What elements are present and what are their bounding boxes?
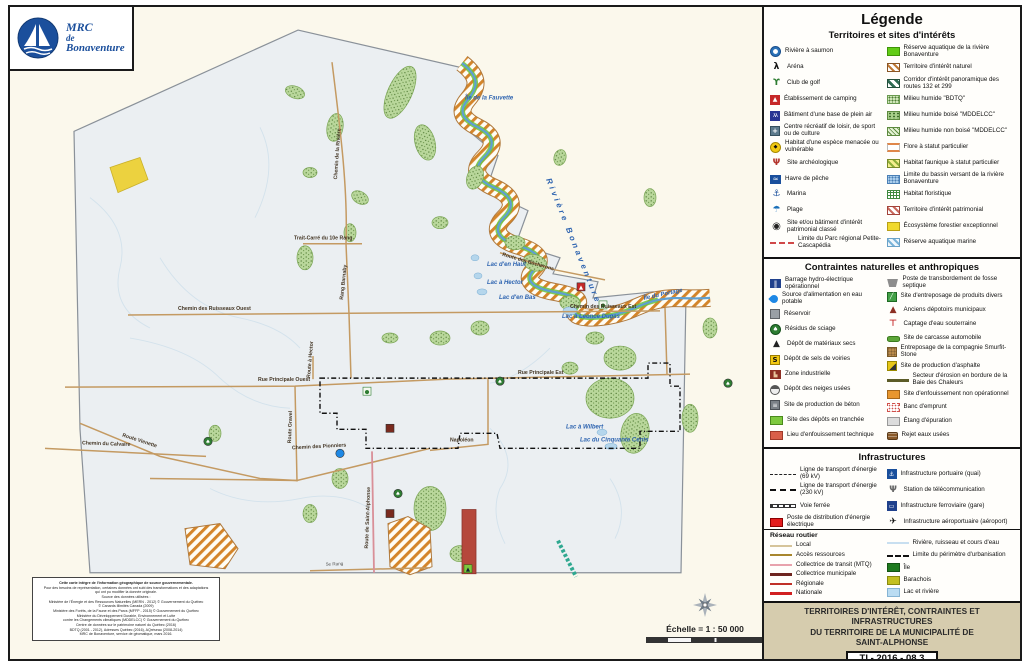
- legend-item: Rivière à saumon: [770, 44, 883, 60]
- legend-item-label: Centre récréatif de loisir, de sport ou …: [784, 124, 883, 138]
- power-line-69kv-icon: [770, 474, 796, 475]
- legend-item-label: Dépôt de matériaux secs: [787, 341, 855, 348]
- legend-item: Écosystème forestier exceptionnel: [887, 219, 1014, 235]
- technical-landfill-swatch: [770, 431, 783, 440]
- groundwater-extraction-icon: [887, 320, 900, 329]
- archaeological-site-icon: [770, 159, 783, 168]
- water-source-marker: [336, 449, 344, 457]
- legend-item: Corridor d'intérêt panoramique des route…: [887, 76, 1014, 92]
- legend-item-label: Aréna: [787, 64, 804, 71]
- sawdust-site-marker: ♠: [496, 377, 504, 385]
- legend-item: Marina: [770, 187, 883, 203]
- legend-item: Limite du périmètre d'urbanisation: [887, 549, 1014, 561]
- watercourse-line: [887, 542, 909, 544]
- legend-item-label: Milieu humide non boisé "MDDELCC": [904, 128, 1007, 135]
- legend-item: Habitat d'une espèce menacée ou vulnérab…: [770, 139, 883, 155]
- road-salt-depot-icon: [770, 355, 780, 365]
- hydro-dam-icon: [770, 279, 781, 288]
- snow-dump-icon: [770, 385, 780, 395]
- legend-item-label: Habitat floristique: [904, 191, 952, 198]
- map-area: ▲●●♠♠♠♠▲ Rivière BonaventureÎle de la Fa…: [10, 7, 762, 659]
- legend-item-label: Territoire d'intérêt naturel: [904, 64, 972, 71]
- industrial-zone-marker: [386, 424, 394, 432]
- mrc-logo: MRC de Bonaventure: [10, 7, 134, 71]
- legend-item-label: Entreposage de la compagnie Smurfit-Ston…: [901, 345, 1014, 359]
- heritage-site-marker: ●: [363, 387, 371, 395]
- legend-item-label: Étang d'épuration: [904, 418, 952, 425]
- legend-item-label: Limite du Parc régional Petite-Cascapédi…: [798, 236, 883, 250]
- camping-icon: [770, 95, 780, 105]
- dry-materials-depot-icon: [770, 340, 783, 349]
- legend-item: Limite du bassin versant de la rivière B…: [887, 171, 1014, 187]
- legend-section-infrastructures: Infrastructures Ligne de transport d'éne…: [764, 447, 1020, 529]
- resource-access-line: [770, 554, 792, 556]
- scale-group: Échelle = 1 : 50 000: [646, 593, 762, 643]
- legend-item: Ligne de transport d'énergie (230 kV): [770, 482, 883, 498]
- camping-site-marker: ▲: [577, 283, 585, 291]
- legend-item-label: Habitat d'une espèce menacée ou vulnérab…: [785, 140, 883, 154]
- legend-item: Milieu humide "BDTQ": [887, 92, 1014, 108]
- legend-item-label: Établissement de camping: [784, 96, 857, 103]
- legend-item: Étang d'épuration: [887, 415, 1014, 429]
- bonaventure-aquatic-reserve-swatch: [887, 47, 900, 56]
- wetland-open-swatch: [887, 127, 900, 136]
- map-label: Lac d'en Bas: [499, 295, 536, 301]
- panoramic-corridor-swatch: [887, 79, 900, 88]
- wastewater-discharge-icon: [887, 432, 898, 440]
- legend-item: Zone industrielle: [770, 367, 883, 382]
- legend-item-label: Nationale: [796, 590, 822, 597]
- golf-icon: [770, 79, 783, 88]
- legend-item: Dépôt de matériaux secs: [770, 337, 883, 352]
- goods-storage-icon: [887, 292, 897, 302]
- legend-item-label: Collectrice municipale: [796, 571, 856, 578]
- legend-item-label: Site de carcasse automobile: [904, 335, 982, 342]
- map-label: Lac à Wilbert: [566, 424, 604, 430]
- legend-item: Collectrice de transit (MTQ): [770, 560, 883, 570]
- contraintes-header: Contraintes naturelles et anthropiques: [768, 262, 1016, 273]
- legend-item-label: Réservoir: [784, 311, 810, 318]
- legend-item: Habitat faunique à statut particulier: [887, 155, 1014, 171]
- power-substation-swatch: [770, 518, 783, 527]
- legend-item-label: Site d'entreposage de produits divers: [901, 293, 1003, 300]
- legend-item: Milieu humide boisé "MDDELCC": [887, 108, 1014, 124]
- legend-item-label: Flore à statut particulier: [904, 144, 969, 151]
- beach-icon: [770, 206, 783, 215]
- legend-item: Site de production d'asphalte: [887, 359, 1014, 373]
- exceptional-forest-swatch: [887, 222, 900, 231]
- map-label: Rue Principale Ouest: [258, 377, 310, 383]
- legend-item: Entreposage de la compagnie Smurfit-Ston…: [887, 345, 1014, 359]
- local-road-line: [770, 545, 792, 547]
- legend-item-label: Habitat faunique à statut particulier: [904, 160, 1000, 167]
- legend-item-label: Site des dépôts en tranchée: [787, 417, 864, 424]
- borrow-pit-swatch: [887, 403, 900, 412]
- legend-item: Régionale: [770, 579, 883, 589]
- legend-item: Barachois: [887, 574, 1014, 586]
- arena-icon: [770, 63, 783, 72]
- reservoir-icon: [770, 309, 780, 319]
- legend-item-label: Captage d'eau souterraine: [904, 321, 977, 328]
- legend-item: Lieu d'enfouissement technique: [770, 428, 883, 443]
- legend-item-label: Réserve aquatique marine: [904, 239, 977, 246]
- legend-item-label: Accès ressources: [796, 552, 845, 559]
- natural-interest-swatch: [887, 63, 900, 72]
- legend-item: Site archéologique: [770, 155, 883, 171]
- legend-item: Infrastructure portuaire (quai): [887, 466, 1014, 482]
- svg-text:♠: ♠: [396, 492, 401, 498]
- legend-item: Site d'entreposage de produits divers: [887, 290, 1014, 304]
- map-label: Napoléon: [450, 437, 474, 443]
- legend-panel: Légende Territoires et sites d'intérêts …: [762, 7, 1020, 659]
- infrastructures-header: Infrastructures: [768, 452, 1016, 463]
- map-label: Route Gravel: [287, 410, 294, 443]
- legend-item: Dépôt de sels de voiries: [770, 352, 883, 367]
- mrc-logo-icon: [16, 16, 60, 60]
- island-swatch: [887, 563, 900, 572]
- sawdust-residue-icon: [770, 324, 781, 335]
- legend-item: Centre récréatif de loisir, de sport ou …: [770, 123, 883, 139]
- map-title-line3: SAINT-ALPHONSE: [766, 638, 1018, 648]
- legend-item-label: Infrastructure aéroportuaire (aéroport): [904, 519, 1008, 526]
- legend-item: Source d'alimentation en eau potable: [770, 291, 883, 306]
- legend-item: Rejet eaux usées: [887, 429, 1014, 443]
- map-label: Île de la Fauvette: [465, 94, 514, 101]
- legend-item: Dépôt des neiges usées: [770, 382, 883, 397]
- svg-text:♠: ♠: [726, 381, 731, 387]
- legend-item: Collectrice municipale: [770, 570, 883, 580]
- wildlife-habitat-swatch: [887, 159, 900, 168]
- legend-item-label: Collectrice de transit (MTQ): [796, 562, 872, 569]
- reseau-routier-header: Réseau routier: [770, 532, 883, 539]
- legend-item: Site d'enfouissement non opérationnel: [887, 387, 1014, 401]
- data-sources-note: Cette carte intègre de l'information géo…: [32, 577, 220, 641]
- legend-item-label: Site de production d'asphalte: [901, 363, 981, 370]
- concrete-plant-icon: [770, 400, 780, 410]
- legend-item-label: Rivière, ruisseau et cours d'eau: [913, 540, 999, 547]
- source-line: Ministère des Forêts, de la Faune et des…: [35, 609, 217, 614]
- legend-item-label: Corridor d'intérêt panoramique des route…: [904, 77, 1014, 91]
- rail-station-icon: [887, 501, 897, 511]
- legend-item: Local: [770, 541, 883, 551]
- territoires-header: Territoires et sites d'intérêts: [768, 30, 1016, 41]
- legend-item: Territoire d'intérêt patrimonial: [887, 203, 1014, 219]
- legend-item: Plage: [770, 203, 883, 219]
- recreation-centre-icon: [770, 126, 780, 136]
- map-label: Trait-Carré du 10e Rang: [294, 236, 352, 242]
- logo-line3: Bonaventure: [66, 43, 125, 55]
- lake-river-swatch: [887, 588, 900, 597]
- sawdust-site-marker: ♠: [204, 437, 212, 445]
- legend-item-label: Ligne de transport d'énergie (69 kV): [800, 467, 883, 481]
- legend-item-label: Écosystème forestier exceptionnel: [904, 223, 998, 230]
- map-label: 5e Rang: [326, 561, 344, 567]
- wetland-wooded-swatch: [887, 111, 900, 120]
- drinking-water-source-icon: [768, 293, 779, 304]
- legend-item-label: Club de golf: [787, 80, 820, 87]
- legend-item: Site de carcasse automobile: [887, 332, 1014, 346]
- sheet-frame: ▲●●♠♠♠♠▲ Rivière BonaventureÎle de la Fa…: [8, 5, 1022, 661]
- sawdust-site-marker: ♠: [394, 489, 402, 497]
- salmon-river-icon: [770, 46, 781, 57]
- legend-item-label: Milieu humide boisé "MDDELCC": [904, 112, 995, 119]
- telecom-station-icon: [887, 486, 900, 495]
- industrial-zone-icon: [770, 370, 781, 379]
- legend-item-label: Source d'alimentation en eau potable: [782, 292, 883, 306]
- sawdust-site-marker: ♠: [724, 379, 732, 387]
- urban-perimeter-line: [887, 555, 909, 557]
- legend-item: Flore à statut particulier: [887, 139, 1014, 155]
- legend-item: Territoire d'intérêt naturel: [887, 60, 1014, 76]
- national-road-line: [770, 592, 792, 595]
- flora-status-swatch: [887, 143, 900, 152]
- legend-item: Réservoir: [770, 306, 883, 321]
- smurfit-storage-icon: [887, 347, 897, 357]
- map-label: Chemin des Ruisseaux Est: [570, 304, 636, 310]
- legend-item: Infrastructure ferroviaire (gare): [887, 498, 1014, 514]
- legend-item: Voie ferrée: [770, 498, 883, 514]
- legend-item-label: Site de production de béton: [784, 402, 860, 409]
- legend-item-label: Ligne de transport d'énergie (230 kV): [800, 483, 883, 497]
- legend-item-label: Station de télécommunication: [904, 487, 985, 494]
- railway-icon: [770, 504, 796, 508]
- endangered-habitat-icon: [770, 142, 781, 153]
- erosion-sector-icon: [887, 379, 909, 382]
- legend-item: Anciens dépotoirs municipaux: [887, 304, 1014, 318]
- legend-item: Site des dépôts en tranchée: [770, 413, 883, 428]
- fishing-harbour-icon: [770, 175, 781, 184]
- old-dump-icon: [887, 306, 900, 315]
- asphalt-plant-icon: [887, 361, 897, 371]
- legend-item: Rivière, ruisseau et cours d'eau: [887, 537, 1014, 549]
- legend-item-label: Banc d'emprunt: [904, 404, 947, 411]
- legend-item-label: Site archéologique: [787, 160, 838, 167]
- dry-materials-depot-marker: ▲: [464, 565, 472, 573]
- legend-item: Milieu humide non boisé "MDDELCC": [887, 123, 1014, 139]
- legend-item-label: Île: [904, 565, 911, 572]
- car-carcass-icon: [887, 336, 900, 342]
- source-line: Cette carte intègre de l'information géo…: [35, 581, 217, 586]
- legend-item: Lac et rivière: [887, 587, 1014, 599]
- septic-transfer-icon: [887, 279, 899, 287]
- map-title-line2: DU TERRITOIRE DE LA MUNICIPALITÉ DE: [766, 628, 1018, 638]
- source-line: MRC de Bonaventure, service de géomatiqu…: [35, 632, 217, 637]
- map-sheet: ▲●●♠♠♠♠▲ Rivière BonaventureÎle de la Fa…: [0, 0, 1030, 666]
- legend-item-label: Poste de transbordement de fosse septiqu…: [903, 276, 1014, 290]
- svg-text:♠: ♠: [498, 379, 503, 385]
- legend-item-label: Infrastructure portuaire (quai): [901, 471, 981, 478]
- legend-item: Bâtiment d'une base de plein air: [770, 108, 883, 124]
- mtq-collector-line: [770, 564, 792, 566]
- map-label: Lac à Léonce Dugas: [562, 314, 621, 320]
- outdoor-base-icon: [770, 111, 780, 121]
- legend-item: Nationale: [770, 589, 883, 599]
- legend-section-territoires: Légende Territoires et sites d'intérêts …: [764, 7, 1020, 257]
- legend-item: Réserve aquatique marine: [887, 235, 1014, 251]
- treatment-pond-swatch: [887, 417, 900, 426]
- legend-item-label: Anciens dépotoirs municipaux: [904, 307, 986, 314]
- legend-item-label: Limite du périmètre d'urbanisation: [913, 552, 1006, 559]
- legend-item: Poste de distribution d'énergie électriq…: [770, 514, 883, 529]
- legend-item: Site de production de béton: [770, 398, 883, 413]
- map-label: Lac à Hector: [487, 280, 524, 286]
- legend-item: Limite du Parc régional Petite-Cascapédi…: [770, 235, 883, 251]
- legend-item: Barrage hydro-électrique opérationnel: [770, 276, 883, 291]
- legend-item: Accès ressources: [770, 551, 883, 561]
- legend-item: Site et/ou bâtiment d'intérêt patrimonia…: [770, 219, 883, 235]
- power-line-230kv-icon: [770, 489, 796, 491]
- compass-rose-icon: [693, 593, 717, 617]
- legend-item: Île: [887, 562, 1014, 574]
- legend-item: Havre de pêche: [770, 171, 883, 187]
- legend-item-label: Voie ferrée: [800, 503, 830, 510]
- legend-section-contraintes: Contraintes naturelles et anthropiques B…: [764, 257, 1020, 447]
- title-block: TERRITOIRES D'INTÉRÊT, CONTRAINTES ET IN…: [764, 601, 1020, 659]
- legend-item-label: Barachois: [904, 577, 932, 584]
- floristic-habitat-swatch: [887, 190, 900, 199]
- legend-item-label: Territoire d'intérêt patrimonial: [904, 207, 984, 214]
- legend-item-label: Barrage hydro-électrique opérationnel: [785, 277, 883, 291]
- legend-item: Station de télécommunication: [887, 482, 1014, 498]
- map-label: Rue Principale Est: [518, 370, 564, 376]
- map-sheet-code: TI - 2016 - 08.3: [846, 651, 939, 659]
- legend-item: Ligne de transport d'énergie (69 kV): [770, 466, 883, 482]
- legend-item-label: Secteur d'érosion en bordure de la Baie …: [913, 373, 1014, 387]
- marina-icon: [770, 190, 783, 199]
- airport-infrastructure-icon: [887, 518, 900, 527]
- legend-item-label: Résidus de sciage: [785, 326, 836, 333]
- legend-item-label: Milieu humide "BDTQ": [904, 96, 965, 103]
- legend-item-label: Limite du bassin versant de la rivière B…: [904, 172, 1014, 186]
- map-label: Lac du Cinquante Cents: [580, 437, 649, 443]
- legend-item: Secteur d'érosion en bordure de la Baie …: [887, 373, 1014, 387]
- legend-item-label: Marina: [787, 191, 806, 198]
- legend-item-label: Dépôt de sels de voiries: [784, 356, 850, 363]
- legend-item-label: Rivière à saumon: [785, 48, 833, 55]
- watershed-limit-swatch: [887, 175, 900, 184]
- cascapedia-park-limit-icon: [770, 242, 794, 244]
- legend-section-reseau-routier: Réseau routier LocalAccès ressourcesColl…: [764, 529, 1020, 601]
- legend-item-label: Local: [796, 542, 811, 549]
- legend-item: Résidus de sciage: [770, 322, 883, 337]
- legend-item: Habitat floristique: [887, 187, 1014, 203]
- legend-item: Aréna: [770, 60, 883, 76]
- legend-item: Réserve aquatique de la rivière Bonavent…: [887, 44, 1014, 60]
- regional-road-line: [770, 583, 792, 585]
- legend-title: Légende: [768, 11, 1016, 28]
- port-infrastructure-icon: [887, 469, 897, 479]
- legend-item-label: Zone industrielle: [785, 371, 830, 378]
- map-label: Chemin des Ruisseaux Ouest: [178, 306, 251, 312]
- marine-aquatic-reserve-swatch: [887, 238, 900, 247]
- industrial-zone-marker: [386, 510, 394, 518]
- technical-landfill-site: [462, 510, 476, 574]
- municipality-map: ▲●●♠♠♠♠▲ Rivière BonaventureÎle de la Fa…: [10, 7, 762, 659]
- svg-text:●: ●: [365, 389, 370, 395]
- wetland-bdtq-swatch: [887, 95, 900, 104]
- legend-item: Club de golf: [770, 76, 883, 92]
- legend-item-label: Dépôt des neiges usées: [784, 386, 850, 393]
- legend-item: Infrastructure aéroportuaire (aéroport): [887, 514, 1014, 529]
- svg-text:♠: ♠: [206, 440, 211, 446]
- heritage-territory-swatch: [887, 206, 900, 215]
- legend-item-label: Régionale: [796, 581, 824, 588]
- nonop-landfill-swatch: [887, 390, 900, 399]
- scale-text: Échelle = 1 : 50 000: [646, 624, 762, 634]
- legend-item-label: Poste de distribution d'énergie électriq…: [787, 515, 883, 529]
- logo-line1: MRC: [66, 21, 125, 34]
- legend-item-label: Réserve aquatique de la rivière Bonavent…: [904, 45, 1014, 59]
- trench-disposal-swatch: [770, 416, 783, 425]
- legend-item-label: Site d'enfouissement non opérationnel: [904, 391, 1009, 398]
- legend-item: Poste de transbordement de fosse septiqu…: [887, 276, 1014, 290]
- legend-item-label: Infrastructure ferroviaire (gare): [901, 503, 985, 510]
- legend-item-label: Havre de pêche: [785, 176, 829, 183]
- legend-item-label: Lac et rivière: [904, 589, 939, 596]
- legend-item: Établissement de camping: [770, 92, 883, 108]
- scale-bar: [646, 637, 762, 643]
- legend-item: Captage d'eau souterraine: [887, 318, 1014, 332]
- map-title-line1: TERRITOIRES D'INTÉRÊT, CONTRAINTES ET IN…: [766, 607, 1018, 628]
- legend-item: Banc d'emprunt: [887, 401, 1014, 415]
- legend-item-label: Bâtiment d'une base de plein air: [784, 112, 872, 119]
- barachois-swatch: [887, 576, 900, 585]
- legend-item-label: Plage: [787, 207, 803, 214]
- legend-item-label: Lieu d'enfouissement technique: [787, 432, 874, 439]
- municipal-collector-line: [770, 573, 792, 576]
- legend-item-label: Site et/ou bâtiment d'intérêt patrimonia…: [787, 220, 883, 234]
- heritage-site-icon: [770, 222, 783, 231]
- legend-item-label: Rejet eaux usées: [902, 432, 950, 439]
